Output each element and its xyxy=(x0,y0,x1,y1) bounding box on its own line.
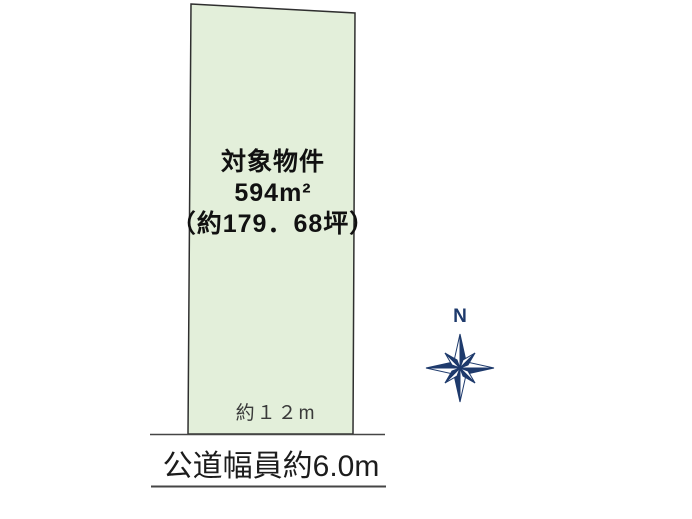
compass-north-label: N xyxy=(430,306,490,328)
road-width-label: 公道幅員約6.0m xyxy=(140,441,402,485)
plot-area-tsubo: （約179．68坪） xyxy=(160,209,386,240)
plot-label: 対象物件 594m² （約179．68坪） xyxy=(160,147,386,240)
site-plan: 対象物件 594m² （約179．68坪） 約１２m 公道幅員約6.0m N xyxy=(0,0,692,519)
plot-label-title: 対象物件 xyxy=(160,147,386,178)
plot-area-sqm: 594m² xyxy=(160,178,386,209)
frontage-dimension: 約１２m xyxy=(188,398,364,425)
compass-rose xyxy=(426,334,494,402)
